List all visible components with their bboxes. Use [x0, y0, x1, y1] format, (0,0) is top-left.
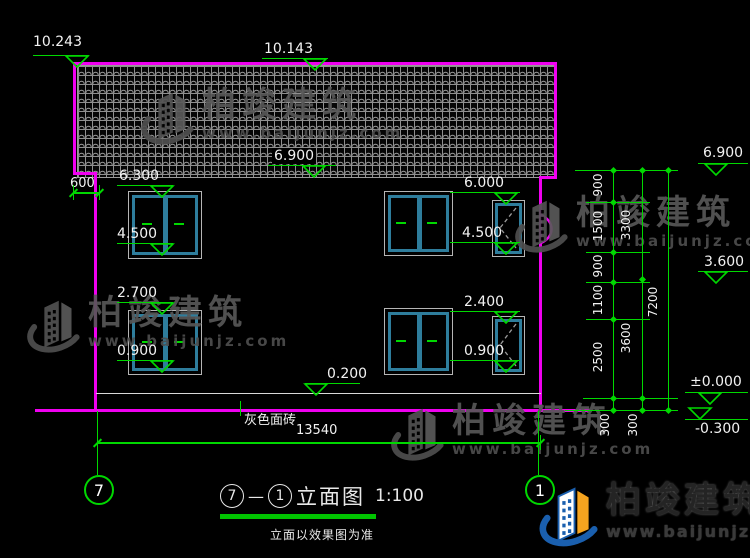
elevation-triangle-icon [493, 360, 519, 373]
brand-name: 柏竣建筑 [606, 484, 750, 519]
left-wall-line [94, 172, 97, 412]
elevation-text: 6.900 [272, 148, 316, 164]
material-label: 灰色面砖 [244, 414, 296, 427]
elevation-text: 4.500 [462, 226, 502, 240]
extension-line [575, 170, 678, 171]
dim-label-vertical: 7200 [647, 272, 659, 332]
elevation-text: 0.200 [327, 367, 367, 381]
elevation-text: 10.243 [33, 35, 82, 49]
window-lower-right [384, 308, 453, 375]
roof-left-edge [73, 62, 76, 174]
building-logo-icon [24, 296, 80, 358]
elevation-text: 0.900 [117, 344, 157, 358]
window-mullion [417, 313, 422, 370]
casement-mark [142, 223, 152, 225]
building-logo-icon [512, 196, 568, 258]
drawing-title: 立面图 [296, 481, 365, 511]
building-logo-icon [536, 484, 598, 552]
brand-building-icon [536, 484, 598, 552]
dimension-line [73, 192, 99, 194]
elevation-triangle-icon [301, 165, 327, 178]
roof-right-edge [554, 62, 557, 179]
dim-label-vertical: 3600 [620, 308, 632, 368]
dimension-text: 13540 [296, 424, 337, 437]
watermark-brand: 柏竣建筑 [202, 88, 403, 124]
watermark-url: www.baijunjz.com [202, 124, 403, 142]
window-upper-right [384, 191, 453, 256]
elevation-triangle-icon [703, 163, 729, 176]
elevation-triangle-icon [697, 392, 723, 405]
dimension-ext [73, 185, 74, 200]
casement-mark [396, 340, 406, 342]
dimension-line [97, 442, 540, 444]
extension-line [565, 410, 678, 411]
axis-circle-from: 7 [220, 484, 244, 508]
elevation-triangle-icon [493, 242, 519, 255]
axis-circle-to: 1 [268, 484, 292, 508]
axis-drop-line [97, 411, 98, 475]
elevation-triangle-icon [703, 271, 729, 284]
dim-label-vertical: 300 [627, 395, 639, 455]
axis-bubble: 7 [84, 475, 114, 505]
dim-chain-line [642, 170, 643, 410]
dim-label-vertical: 2500 [592, 327, 604, 387]
elevation-text: ±0.000 [690, 375, 742, 389]
window-mullion [417, 196, 422, 251]
title-row: 7 — 1 立面图 1:100 [220, 481, 424, 511]
dim-label-vertical: 1100 [592, 270, 604, 330]
casement-mark [174, 223, 184, 225]
elevation-triangle-icon [687, 407, 713, 420]
cad-elevation-drawing: 柏竣建筑 www.baijunjz.com [0, 0, 750, 558]
material-leader-line [240, 401, 241, 416]
elevation-triangle-icon [302, 58, 328, 71]
elevation-text: 4.500 [117, 227, 157, 241]
brand-logo: 柏竣建筑 www.baijunjz.com [536, 484, 750, 552]
brand-url: www.baijunjz.com [606, 522, 750, 541]
elevation-text: -0.300 [695, 422, 740, 436]
title-note: 立面以效果图为准 [220, 526, 424, 543]
elevation-triangle-icon [149, 360, 175, 373]
elevation-text: 2.400 [464, 295, 504, 309]
title-underline [220, 514, 376, 519]
title-block: 7 — 1 立面图 1:100 立面以效果图为准 [220, 481, 424, 543]
elevation-triangle-icon [149, 185, 175, 198]
dimension-ext [540, 435, 541, 450]
elevation-triangle-icon [303, 383, 329, 396]
elevation-triangle-icon [149, 243, 175, 256]
casement-mark [427, 340, 437, 342]
dimension-ext [99, 185, 100, 200]
elevation-triangle-icon [149, 302, 175, 315]
elevation-text: 10.143 [264, 42, 313, 56]
elevation-text: 0.900 [464, 344, 504, 358]
elevation-triangle-icon [64, 55, 90, 68]
elevation-text: 2.700 [117, 286, 157, 300]
casement-mark [396, 222, 406, 224]
elevation-text: 6.300 [119, 169, 159, 183]
elevation-text: 3.600 [704, 255, 744, 269]
elevation-text: 6.000 [464, 176, 504, 190]
elevation-text: 6.900 [703, 146, 743, 160]
casement-mark [427, 222, 437, 224]
building-logo-icon [388, 404, 444, 466]
watermark: 柏竣建筑 www.baijunjz.com [138, 88, 403, 150]
elevation-triangle-icon [493, 311, 519, 324]
drawing-scale: 1:100 [375, 486, 424, 506]
title-dash: — [248, 487, 264, 506]
dim-label-vertical: 300 [599, 395, 611, 455]
axis-drop-line [538, 411, 539, 475]
right-eave-step [540, 176, 557, 179]
building-logo-icon [138, 88, 194, 150]
dim-label-vertical: 3300 [620, 195, 632, 255]
dim-chain-line [668, 170, 669, 410]
elevation-triangle-icon [493, 192, 519, 205]
